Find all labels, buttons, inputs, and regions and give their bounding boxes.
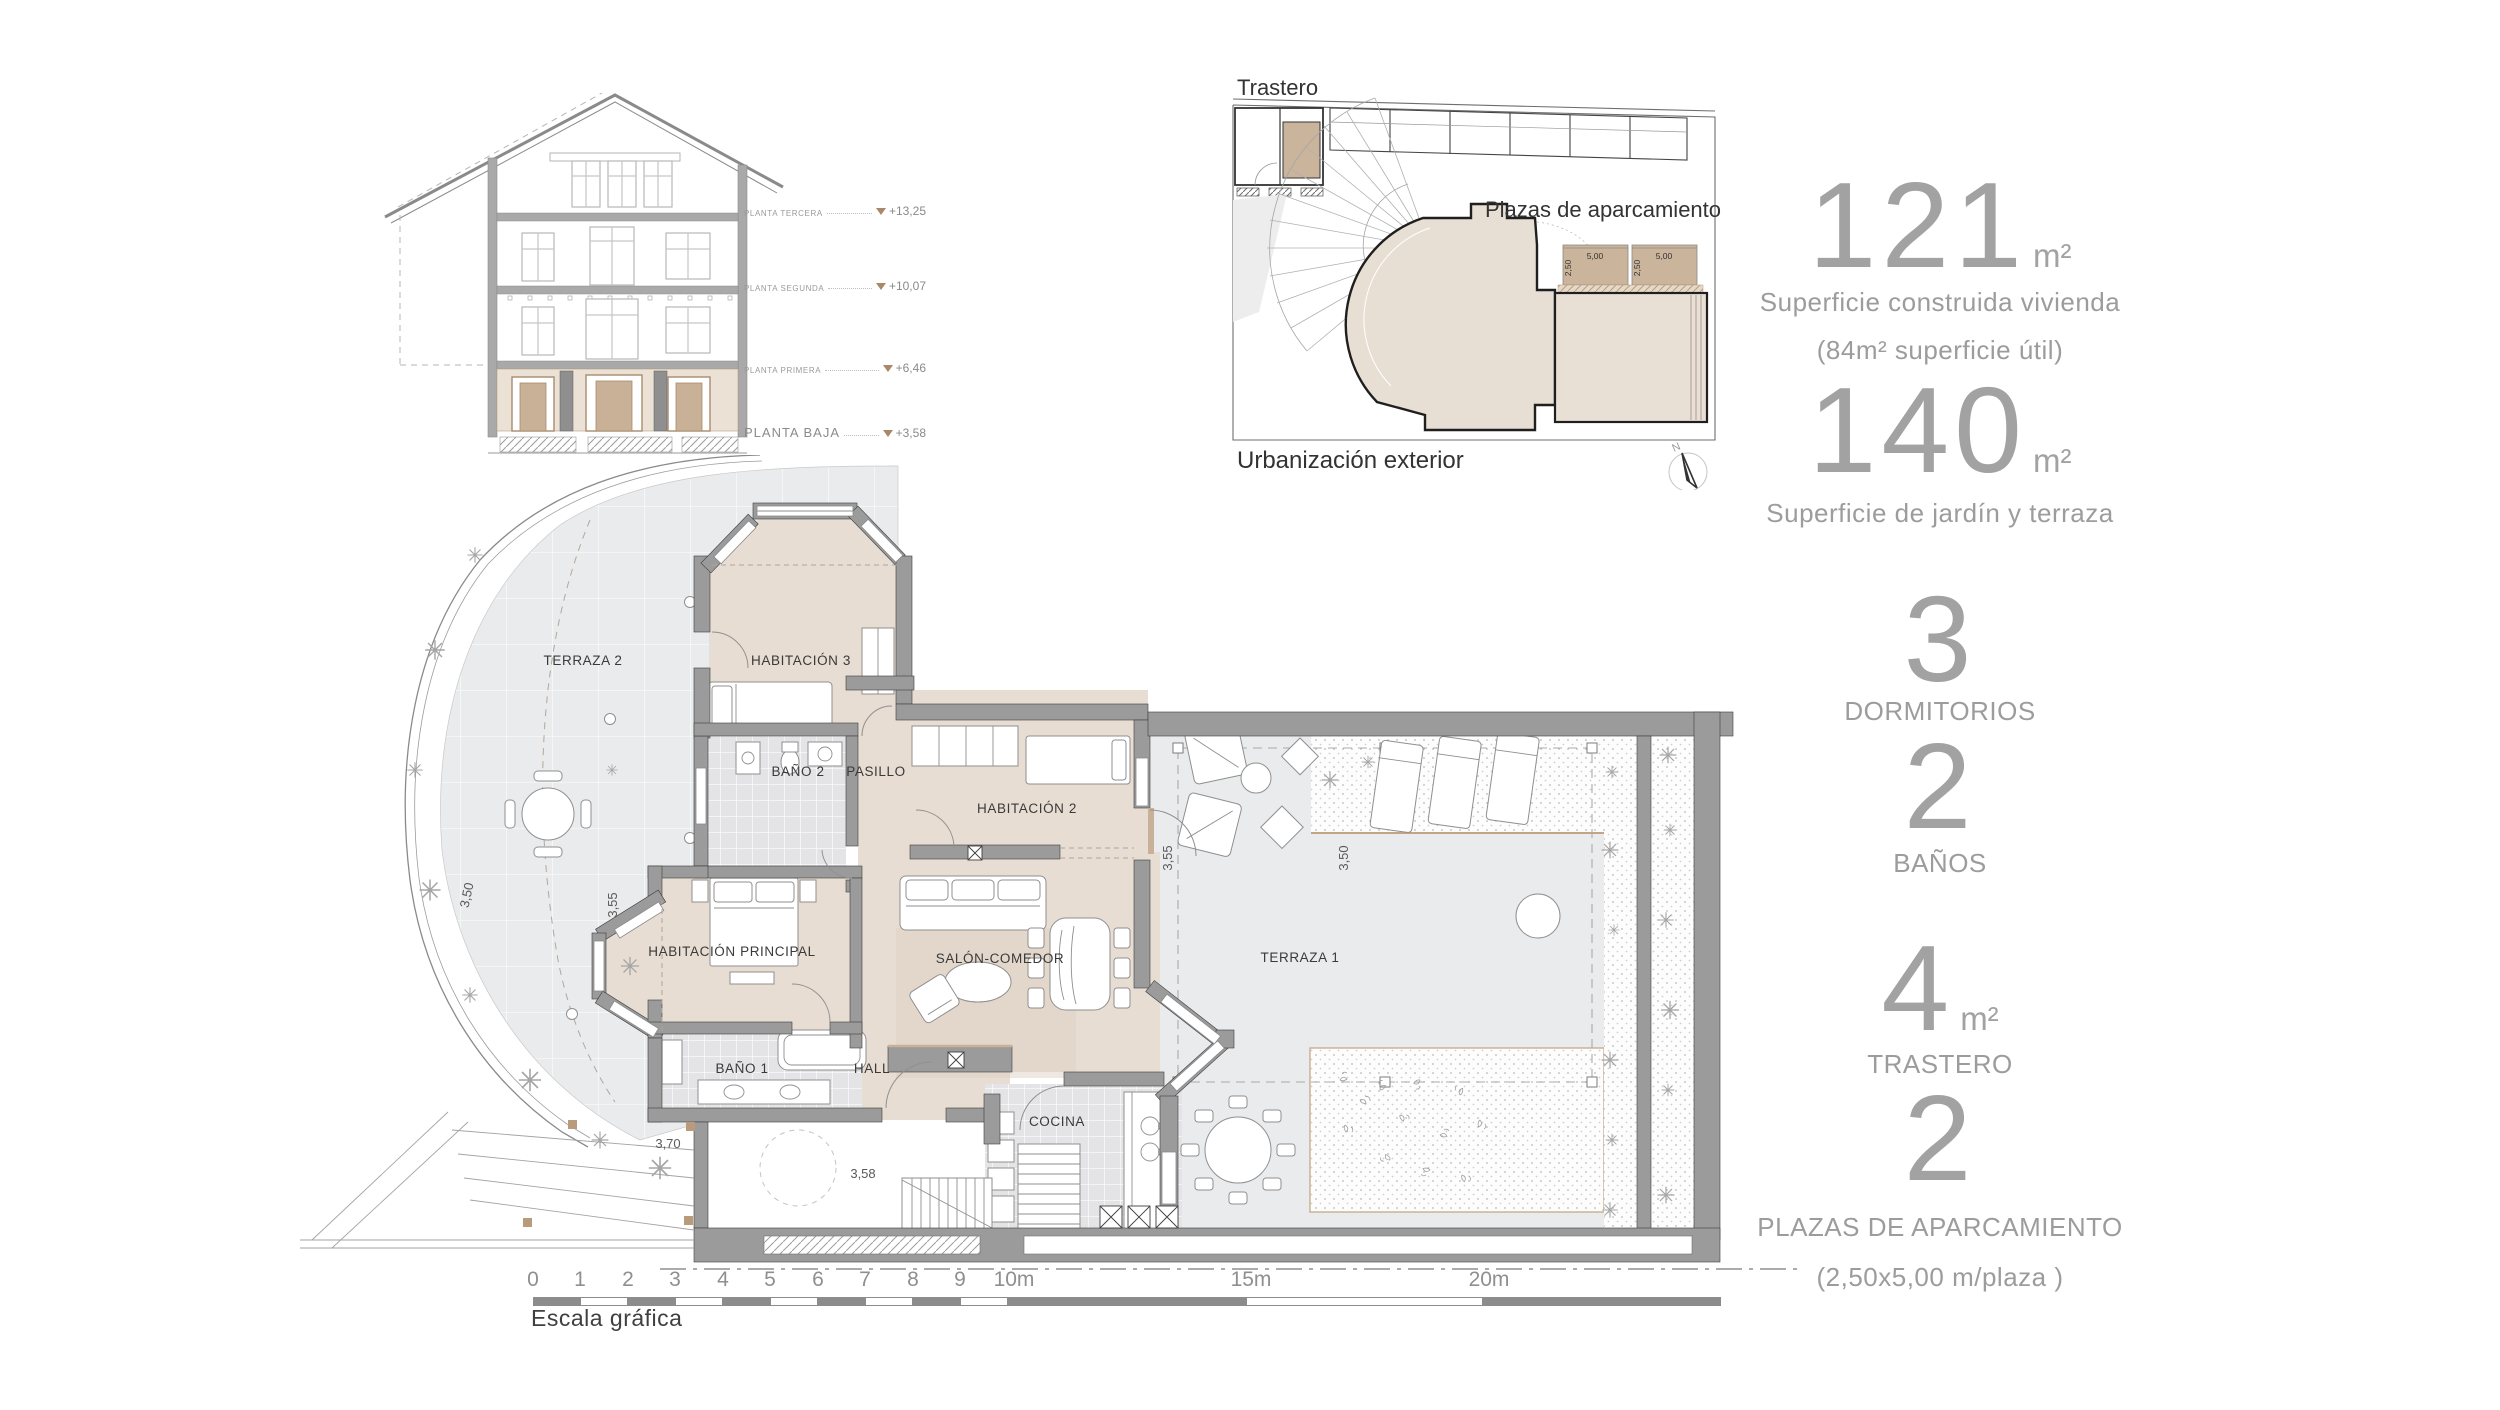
stat-bathrooms: 2 xyxy=(1640,725,2240,847)
room-label-habitacion-3: HABITACIÓN 3 xyxy=(751,653,851,668)
room-label-bano-1: BAÑO 1 xyxy=(715,1061,768,1076)
level-marker-icon xyxy=(876,208,886,215)
stall-width-dim: 5,00 xyxy=(1587,251,1604,261)
architectural-sheet: PLANTA TERCERA +13,25 PLANTA SEGUNDA +10… xyxy=(0,0,2500,1410)
scale-tick: 9 xyxy=(938,1268,982,1292)
room-label-habitacion-principal: HABITACIÓN PRINCIPAL xyxy=(648,944,816,959)
dim-habp-bay: 3,55 xyxy=(605,892,620,917)
scale-tick: 8 xyxy=(891,1268,935,1292)
level-label: PLANTA TERCERA xyxy=(744,209,823,218)
scale-tick: 2 xyxy=(606,1268,650,1292)
level-elevation: +3,58 xyxy=(896,426,926,440)
scale-tick: 1 xyxy=(558,1268,602,1292)
scale-tick: 6 xyxy=(796,1268,840,1292)
dim-acceso: 3,58 xyxy=(850,1166,875,1181)
floor-plan-drawing: TERRAZA 2 HABITACIÓN 3 BAÑO 2 PASILLO HA… xyxy=(280,455,1810,1285)
hedge-strip xyxy=(1604,736,1637,1232)
stat-storage: 4m² xyxy=(1640,927,2240,1049)
level-planta-segunda: PLANTA SEGUNDA +10,07 xyxy=(744,275,926,293)
scale-tick: 20m xyxy=(1467,1268,1511,1292)
dim-pergola-right: 3,50 xyxy=(1336,845,1351,870)
stair-entry xyxy=(902,1178,992,1230)
scale-bar-title: Escala gráfica xyxy=(531,1305,682,1332)
scale-tick: 0 xyxy=(511,1268,555,1292)
stat-built-area: 121m² xyxy=(1640,164,2240,286)
section-dashed-boundary xyxy=(398,93,602,365)
room-label-terraza-1: TERRAZA 1 xyxy=(1261,950,1340,965)
room-label-hall: HALL xyxy=(854,1061,890,1076)
leader-dots xyxy=(828,288,872,289)
level-marker-icon xyxy=(883,365,893,372)
storage-row xyxy=(1330,108,1687,160)
dim-pergola-left: 3,55 xyxy=(1160,845,1175,870)
room-label-cocina: COCINA xyxy=(1029,1114,1085,1129)
room-label-bano-2: BAÑO 2 xyxy=(771,764,824,779)
room-label-terraza-2: TERRAZA 2 xyxy=(544,653,623,668)
building-section-drawing xyxy=(250,55,910,475)
stair-interior xyxy=(1018,1144,1080,1232)
scale-tick: 10m xyxy=(992,1268,1036,1292)
dim-rampa: 3,70 xyxy=(655,1136,680,1151)
level-planta-primera: PLANTA PRIMERA +6,46 xyxy=(744,357,926,375)
leader-dots xyxy=(844,435,879,436)
leader-dots xyxy=(827,213,872,214)
trastero-room xyxy=(1235,108,1323,196)
stat-bathrooms-caption: BAÑOS xyxy=(1640,849,2240,877)
scale-tick: 15m xyxy=(1229,1268,1273,1292)
level-elevation: +13,25 xyxy=(889,204,926,218)
level-label: PLANTA BAJA xyxy=(744,425,840,440)
level-marker-icon xyxy=(876,283,886,290)
trastero-label: Trastero xyxy=(1237,75,1318,100)
level-label: PLANTA PRIMERA xyxy=(744,366,821,375)
level-elevation: +6,46 xyxy=(896,361,926,375)
level-label: PLANTA SEGUNDA xyxy=(744,284,824,293)
room-label-pasillo: PASILLO xyxy=(846,764,905,779)
level-planta-tercera: PLANTA TERCERA +13,25 xyxy=(744,200,926,218)
stat-parking-caption: PLAZAS DE APARCAMIENTO xyxy=(1640,1213,2240,1241)
scale-tick: 7 xyxy=(843,1268,887,1292)
room-label-habitacion-2: HABITACIÓN 2 xyxy=(977,801,1077,816)
stat-bedrooms: 3 xyxy=(1640,578,2240,700)
stat-garden-area: 140m² xyxy=(1640,369,2240,491)
leader-dots xyxy=(825,370,878,371)
room-label-salon-comedor: SALÓN-COMEDOR xyxy=(936,951,1065,966)
scale-tick: 5 xyxy=(748,1268,792,1292)
stat-garden-area-caption: Superficie de jardín y terraza xyxy=(1640,499,2240,527)
level-planta-baja: PLANTA BAJA +3,58 xyxy=(744,422,926,440)
level-elevation: +10,07 xyxy=(889,279,926,293)
stat-built-area-caption: Superficie construida vivienda xyxy=(1640,288,2240,316)
sun-loungers xyxy=(1370,732,1540,833)
stat-useful-area-caption: (84m² superficie útil) xyxy=(1640,336,2240,364)
stat-parking: 2 xyxy=(1640,1077,2240,1199)
level-marker-icon xyxy=(883,430,893,437)
stall-depth-dim: 2,50 xyxy=(1563,259,1573,276)
scale-tick: 4 xyxy=(701,1268,745,1292)
section-ground-floor xyxy=(488,369,747,453)
section-windows xyxy=(522,161,710,359)
scale-tick: 3 xyxy=(653,1268,697,1292)
stats-column: 121m² Superficie construida vivienda (84… xyxy=(1640,0,2240,1410)
